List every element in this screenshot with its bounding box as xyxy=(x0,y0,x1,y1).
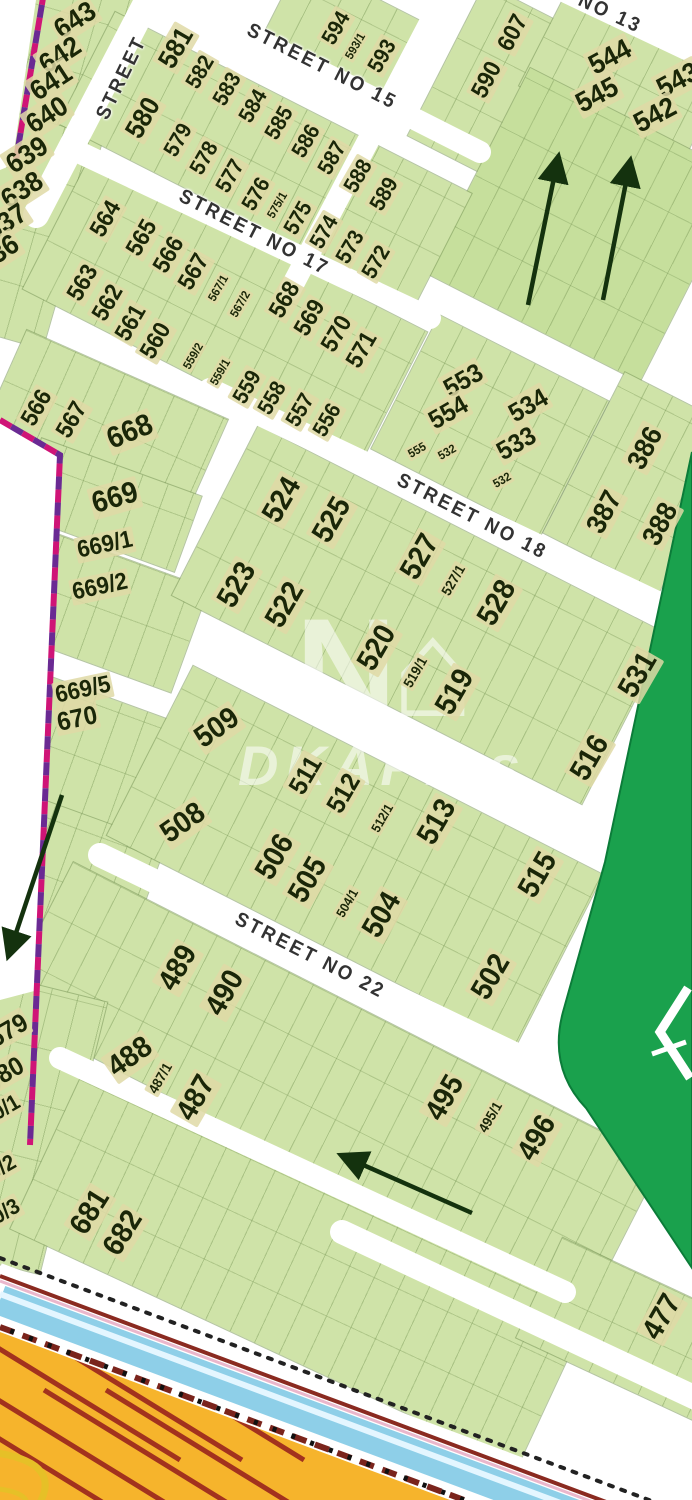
park-white-mark xyxy=(660,988,690,1078)
road-yellow-curve xyxy=(0,1452,45,1500)
park-white-arrow xyxy=(652,1042,686,1054)
plot-map: N⌂ DKAPlus 64364264164063963863763659459… xyxy=(0,0,692,1500)
